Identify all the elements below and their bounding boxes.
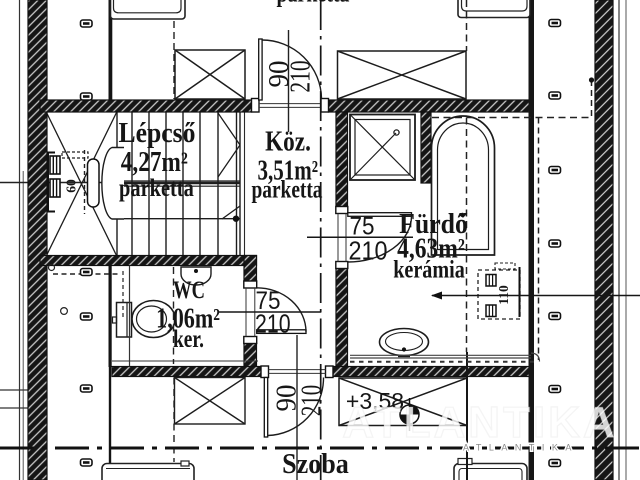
svg-text:ker.: ker. bbox=[173, 324, 204, 352]
svg-text:ATLANTIKA: ATLANTIKA bbox=[463, 443, 579, 453]
svg-text:Szoba: Szoba bbox=[282, 447, 349, 480]
svg-text:210: 210 bbox=[255, 310, 291, 340]
svg-text:Köz.: Köz. bbox=[265, 125, 311, 157]
svg-text:ATLANTIKA: ATLANTIKA bbox=[342, 398, 617, 447]
svg-text:210: 210 bbox=[295, 385, 327, 416]
svg-text:parketta: parketta bbox=[252, 175, 323, 203]
svg-text:kerámia: kerámia bbox=[393, 255, 465, 283]
svg-text:210: 210 bbox=[283, 60, 316, 92]
svg-text:parketta: parketta bbox=[277, 0, 350, 7]
svg-text:210: 210 bbox=[349, 237, 388, 265]
svg-text:Lépcső: Lépcső bbox=[119, 117, 196, 149]
svg-text:parketta: parketta bbox=[119, 173, 194, 202]
svg-text:WC: WC bbox=[173, 275, 205, 303]
svg-text:60: 60 bbox=[64, 179, 79, 193]
